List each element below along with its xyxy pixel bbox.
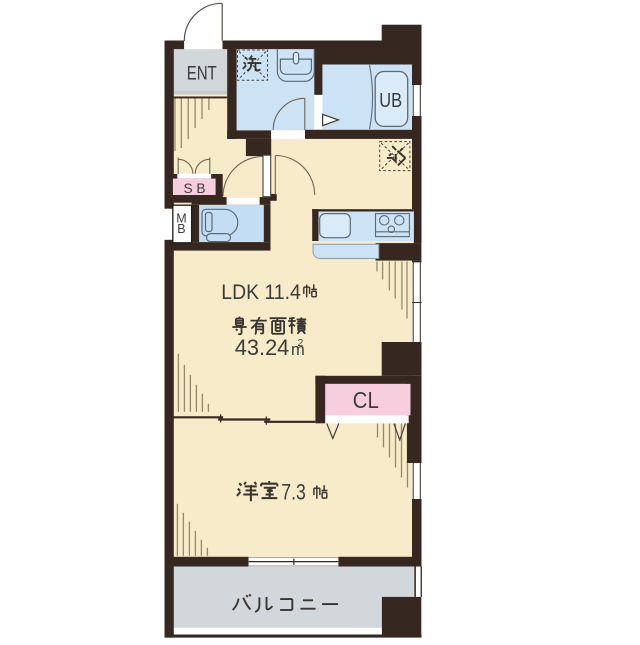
svg-text:UB: UB <box>379 90 402 112</box>
svg-text:7.3: 7.3 <box>281 480 306 505</box>
svg-text:B: B <box>177 222 185 236</box>
svg-text:CL: CL <box>353 387 379 413</box>
svg-text:2: 2 <box>298 337 304 349</box>
svg-text:LDK 11.4: LDK 11.4 <box>221 281 301 304</box>
svg-text:43.24: 43.24 <box>235 335 289 360</box>
svg-text:ENT: ENT <box>187 63 217 84</box>
svg-text:S B: S B <box>184 181 206 196</box>
